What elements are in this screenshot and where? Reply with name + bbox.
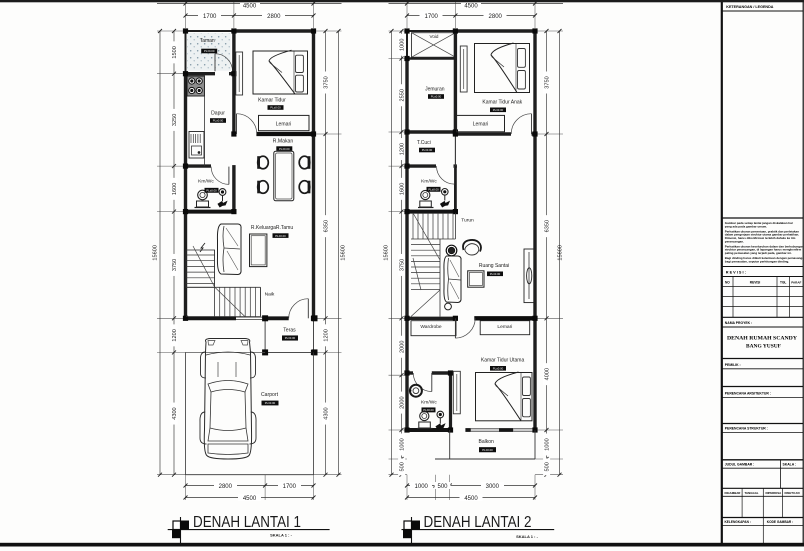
svg-text:PL±0.00: PL±0.00 [270, 106, 281, 110]
svg-text:PL±0.00: PL±0.00 [213, 119, 224, 123]
svg-text:DENAH LANTAI 1: DENAH LANTAI 1 [193, 514, 301, 531]
svg-text:SKALA :: SKALA : [783, 463, 797, 467]
svg-text:R.Makan: R.Makan [273, 139, 294, 145]
svg-text:PL±0.00: PL±0.00 [265, 401, 276, 405]
svg-text:DIGAMBAR: DIGAMBAR [725, 491, 742, 495]
svg-text:4000: 4000 [545, 368, 551, 380]
svg-text:4500: 4500 [243, 4, 257, 10]
svg-text:TGL: TGL [780, 281, 786, 285]
svg-text:1000: 1000 [415, 484, 429, 490]
svg-text:1700: 1700 [425, 14, 439, 20]
svg-text:DENAH LANTAI 2: DENAH LANTAI 2 [424, 514, 532, 531]
svg-text:4500: 4500 [464, 496, 478, 502]
svg-text:3750: 3750 [400, 259, 406, 271]
svg-text:1000: 1000 [545, 438, 551, 450]
svg-text:Jemuran: Jemuran [425, 87, 445, 93]
svg-text:BANG YUSUF: BANG YUSUF [746, 344, 782, 350]
svg-text:Carport: Carport [261, 392, 279, 398]
svg-text:500: 500 [437, 484, 448, 490]
svg-text:2550: 2550 [400, 89, 406, 101]
svg-text:1000: 1000 [400, 438, 406, 450]
svg-text:2000: 2000 [400, 341, 406, 353]
svg-text:PL±0.00: PL±0.00 [206, 189, 217, 193]
svg-text:PL±0.00: PL±0.00 [490, 272, 501, 276]
svg-text:PL±0.00: PL±0.00 [493, 108, 504, 112]
svg-text:PERENCANA STRUKTUR :: PERENCANA STRUKTUR : [725, 427, 768, 431]
svg-text:Turun: Turun [461, 218, 474, 224]
svg-text:PL±0.00: PL±0.00 [482, 448, 493, 452]
svg-text:NAMA PROYEK :: NAMA PROYEK : [725, 321, 752, 325]
svg-text:2800: 2800 [267, 14, 281, 20]
svg-text:500: 500 [545, 462, 551, 471]
svg-text:DISETUJUI: DISETUJUI [785, 491, 800, 495]
svg-text:Wardrobe: Wardrobe [420, 324, 442, 330]
svg-text:PL±0.00: PL±0.00 [493, 367, 504, 371]
svg-text:perancangan.: perancangan. [725, 239, 744, 243]
svg-text:Lemari: Lemari [497, 324, 512, 330]
svg-text:2000: 2000 [400, 396, 406, 408]
svg-text:4500: 4500 [464, 4, 478, 10]
svg-text:500: 500 [400, 462, 406, 471]
svg-text:DENAH RUMAH SCANDY: DENAH RUMAH SCANDY [727, 336, 797, 342]
svg-text:PARAF: PARAF [791, 281, 801, 285]
svg-text:1600: 1600 [172, 183, 178, 195]
svg-text:1500: 1500 [172, 46, 178, 58]
svg-text:Kamar Tidur: Kamar Tidur [258, 98, 286, 104]
svg-text:1000: 1000 [400, 39, 406, 51]
svg-text:KODE GAMBAR :: KODE GAMBAR : [767, 520, 793, 524]
svg-text:TANGGAL: TANGGAL [745, 491, 759, 495]
svg-text:SKALA 1 : -: SKALA 1 : - [516, 534, 539, 539]
svg-text:1600: 1600 [400, 183, 406, 195]
svg-text:15600: 15600 [384, 245, 390, 261]
svg-text:PL±0.00: PL±0.00 [428, 188, 439, 192]
svg-text:Km/Wc: Km/Wc [421, 399, 437, 405]
svg-text:T.Cuci: T.Cuci [417, 140, 431, 146]
svg-text:1700: 1700 [203, 14, 217, 20]
svg-text:bagi pemasalan, seputar perhit: bagi pemasalan, seputar perhitungan dind… [725, 259, 789, 263]
svg-text:REVISI: REVISI [750, 281, 761, 285]
svg-text:yang ada pada gambar umum.: yang ada pada gambar umum. [725, 224, 767, 228]
svg-text:1200: 1200 [324, 329, 330, 341]
svg-text:1200: 1200 [172, 329, 178, 341]
svg-text:PEMILIK :: PEMILIK : [725, 363, 741, 367]
svg-text:15600: 15600 [558, 245, 564, 261]
svg-text:3750: 3750 [172, 259, 178, 271]
svg-text:4300: 4300 [172, 407, 178, 419]
svg-text:15600: 15600 [153, 245, 159, 261]
svg-text:Kamar Tidur Utama: Kamar Tidur Utama [481, 358, 525, 364]
svg-text:PL±0.00: PL±0.00 [431, 95, 442, 99]
svg-text:Balkon: Balkon [479, 439, 495, 445]
svg-text:NO: NO [725, 281, 730, 285]
svg-text:JUDUL GAMBAR :: JUDUL GAMBAR : [725, 463, 755, 467]
svg-text:1700: 1700 [283, 484, 297, 490]
svg-text:PERENCANA ARSITEKTUR :: PERENCANA ARSITEKTUR : [725, 392, 771, 396]
svg-text:KELENGKAPAN :: KELENGKAPAN : [725, 520, 751, 524]
svg-text:DIPERIKSA: DIPERIKSA [766, 491, 783, 495]
svg-text:1200: 1200 [400, 143, 406, 155]
svg-text:3000: 3000 [486, 484, 500, 490]
svg-text:R.KeluargaR.Tamu: R.KeluargaR.Tamu [251, 225, 293, 231]
svg-text:PL±0.00: PL±0.00 [422, 148, 433, 152]
svg-text:PL±0.00: PL±0.00 [279, 147, 290, 151]
svg-text:Kamar Tidur Anak: Kamar Tidur Anak [482, 100, 522, 106]
svg-text:PL±0.00: PL±0.00 [204, 49, 215, 53]
svg-text:R E V I S I :: R E V I S I : [726, 270, 746, 274]
svg-text:Naik: Naik [265, 292, 275, 298]
svg-text:6350: 6350 [324, 220, 330, 232]
svg-text:paling pemasalan yang terjadi: paling pemasalan yang terjadi pada, gamb… [725, 251, 792, 255]
svg-text:Dapur: Dapur [211, 111, 225, 117]
svg-text:Void: Void [430, 34, 439, 39]
svg-text:Km/Wc: Km/Wc [198, 178, 214, 184]
svg-text:2800: 2800 [219, 484, 233, 490]
svg-text:Lemari: Lemari [276, 122, 292, 128]
svg-text:Ruang Santai: Ruang Santai [479, 263, 509, 269]
svg-text:Taman: Taman [200, 38, 215, 44]
svg-text:PL±0.00: PL±0.00 [285, 336, 296, 340]
svg-text:3250: 3250 [172, 114, 178, 126]
svg-text:15600: 15600 [341, 245, 347, 261]
svg-text:PL±0.00: PL±0.00 [275, 234, 286, 238]
svg-text:Km/Wc: Km/Wc [421, 178, 437, 184]
svg-text:4300: 4300 [324, 407, 330, 419]
svg-text:2800: 2800 [489, 14, 503, 20]
svg-text:6350: 6350 [545, 220, 551, 232]
svg-text:Teras: Teras [283, 328, 296, 334]
svg-text:4500: 4500 [243, 496, 257, 502]
svg-text:3750: 3750 [324, 76, 330, 88]
svg-text:Lemari: Lemari [473, 122, 489, 128]
svg-text:KETERANGAN / LEGENDA: KETERANGAN / LEGENDA [726, 5, 773, 9]
svg-text:3750: 3750 [545, 76, 551, 88]
svg-text:SKALA 1 : -: SKALA 1 : - [270, 533, 293, 538]
